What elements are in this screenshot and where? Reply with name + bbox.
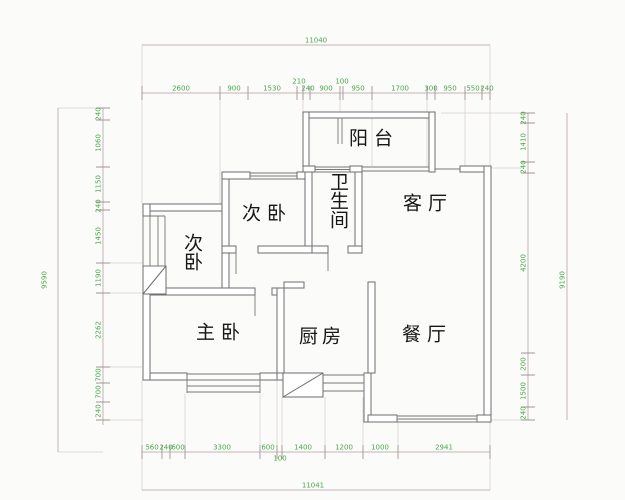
dim-bottom-3: 3300: [213, 445, 231, 452]
dim-top-10: 950: [443, 86, 456, 93]
dim-right-5: 1500: [521, 382, 528, 400]
dim-left-7: 700: [96, 368, 103, 381]
dim-bottom-0: 560: [145, 445, 158, 452]
dim-bottom-9: 2941: [435, 445, 453, 452]
dim-left-5: 1190: [96, 269, 103, 287]
dim-left-total: 9590: [42, 271, 49, 289]
dim-left-2: 1150: [96, 175, 103, 193]
dim-bottom-5: 100: [273, 456, 286, 463]
room-label-kitchen: 厨房: [299, 328, 345, 347]
dim-right-3: 4200: [521, 254, 528, 272]
room-label-master: 主卧: [196, 324, 246, 343]
room-label-bedroom2-left: 次卧: [181, 233, 201, 271]
dim-left-6: 2262: [96, 321, 103, 339]
dim-bottom-7: 1200: [335, 445, 353, 452]
room-label-dining: 餐厅: [402, 326, 452, 345]
dim-bottom-total: 11041: [302, 483, 324, 490]
dim-right-1: 1410: [521, 133, 528, 151]
dim-right-0: 240: [521, 111, 528, 124]
dim-top-2: 1530: [263, 86, 281, 93]
dim-top-12: 240: [480, 86, 493, 93]
dim-right-2: 240: [521, 160, 528, 173]
dim-top-total: 11040: [305, 38, 327, 45]
dim-bottom-8: 1000: [371, 445, 389, 452]
dim-top-1: 900: [227, 86, 240, 93]
dim-top-9: 300: [424, 86, 437, 93]
dim-left-3: 240: [96, 199, 103, 212]
room-label-living: 客厅: [403, 195, 453, 214]
dim-top-7: 950: [351, 86, 364, 93]
dim-top-4: 240: [301, 86, 314, 93]
dim-left-9: 240: [96, 404, 103, 417]
dim-left-1: 1060: [96, 134, 103, 152]
room-label-balcony: 阳台: [349, 130, 399, 149]
room-label-bathroom: 卫生间: [327, 172, 347, 256]
dim-right-total: 9190: [560, 271, 567, 289]
extension-lines: [58, 45, 521, 490]
dim-left-8: 700: [96, 385, 103, 398]
dim-right-4: 200: [521, 357, 528, 370]
dim-top-11: 550: [466, 86, 479, 93]
dim-top-6: 100: [335, 79, 348, 86]
dim-bottom-6: 1400: [294, 445, 312, 452]
dim-bottom-2: 600: [171, 445, 184, 452]
dim-top-0: 2600: [172, 86, 190, 93]
dim-left-0: 240: [96, 107, 103, 120]
floorplan-page: 阳台 卫生间 次卧 次卧 客厅 主卧 厨房 餐厅 11040 2600 900 …: [0, 0, 625, 500]
dim-bottom-4: 600: [261, 445, 274, 452]
dim-top-5: 900: [319, 86, 332, 93]
room-label-bedroom2-center: 次卧: [242, 205, 292, 224]
dim-top-8: 1700: [391, 86, 409, 93]
dim-left-4: 1450: [96, 227, 103, 245]
floorplan-drawing: [0, 0, 625, 500]
dim-right-6: 240: [521, 406, 528, 419]
